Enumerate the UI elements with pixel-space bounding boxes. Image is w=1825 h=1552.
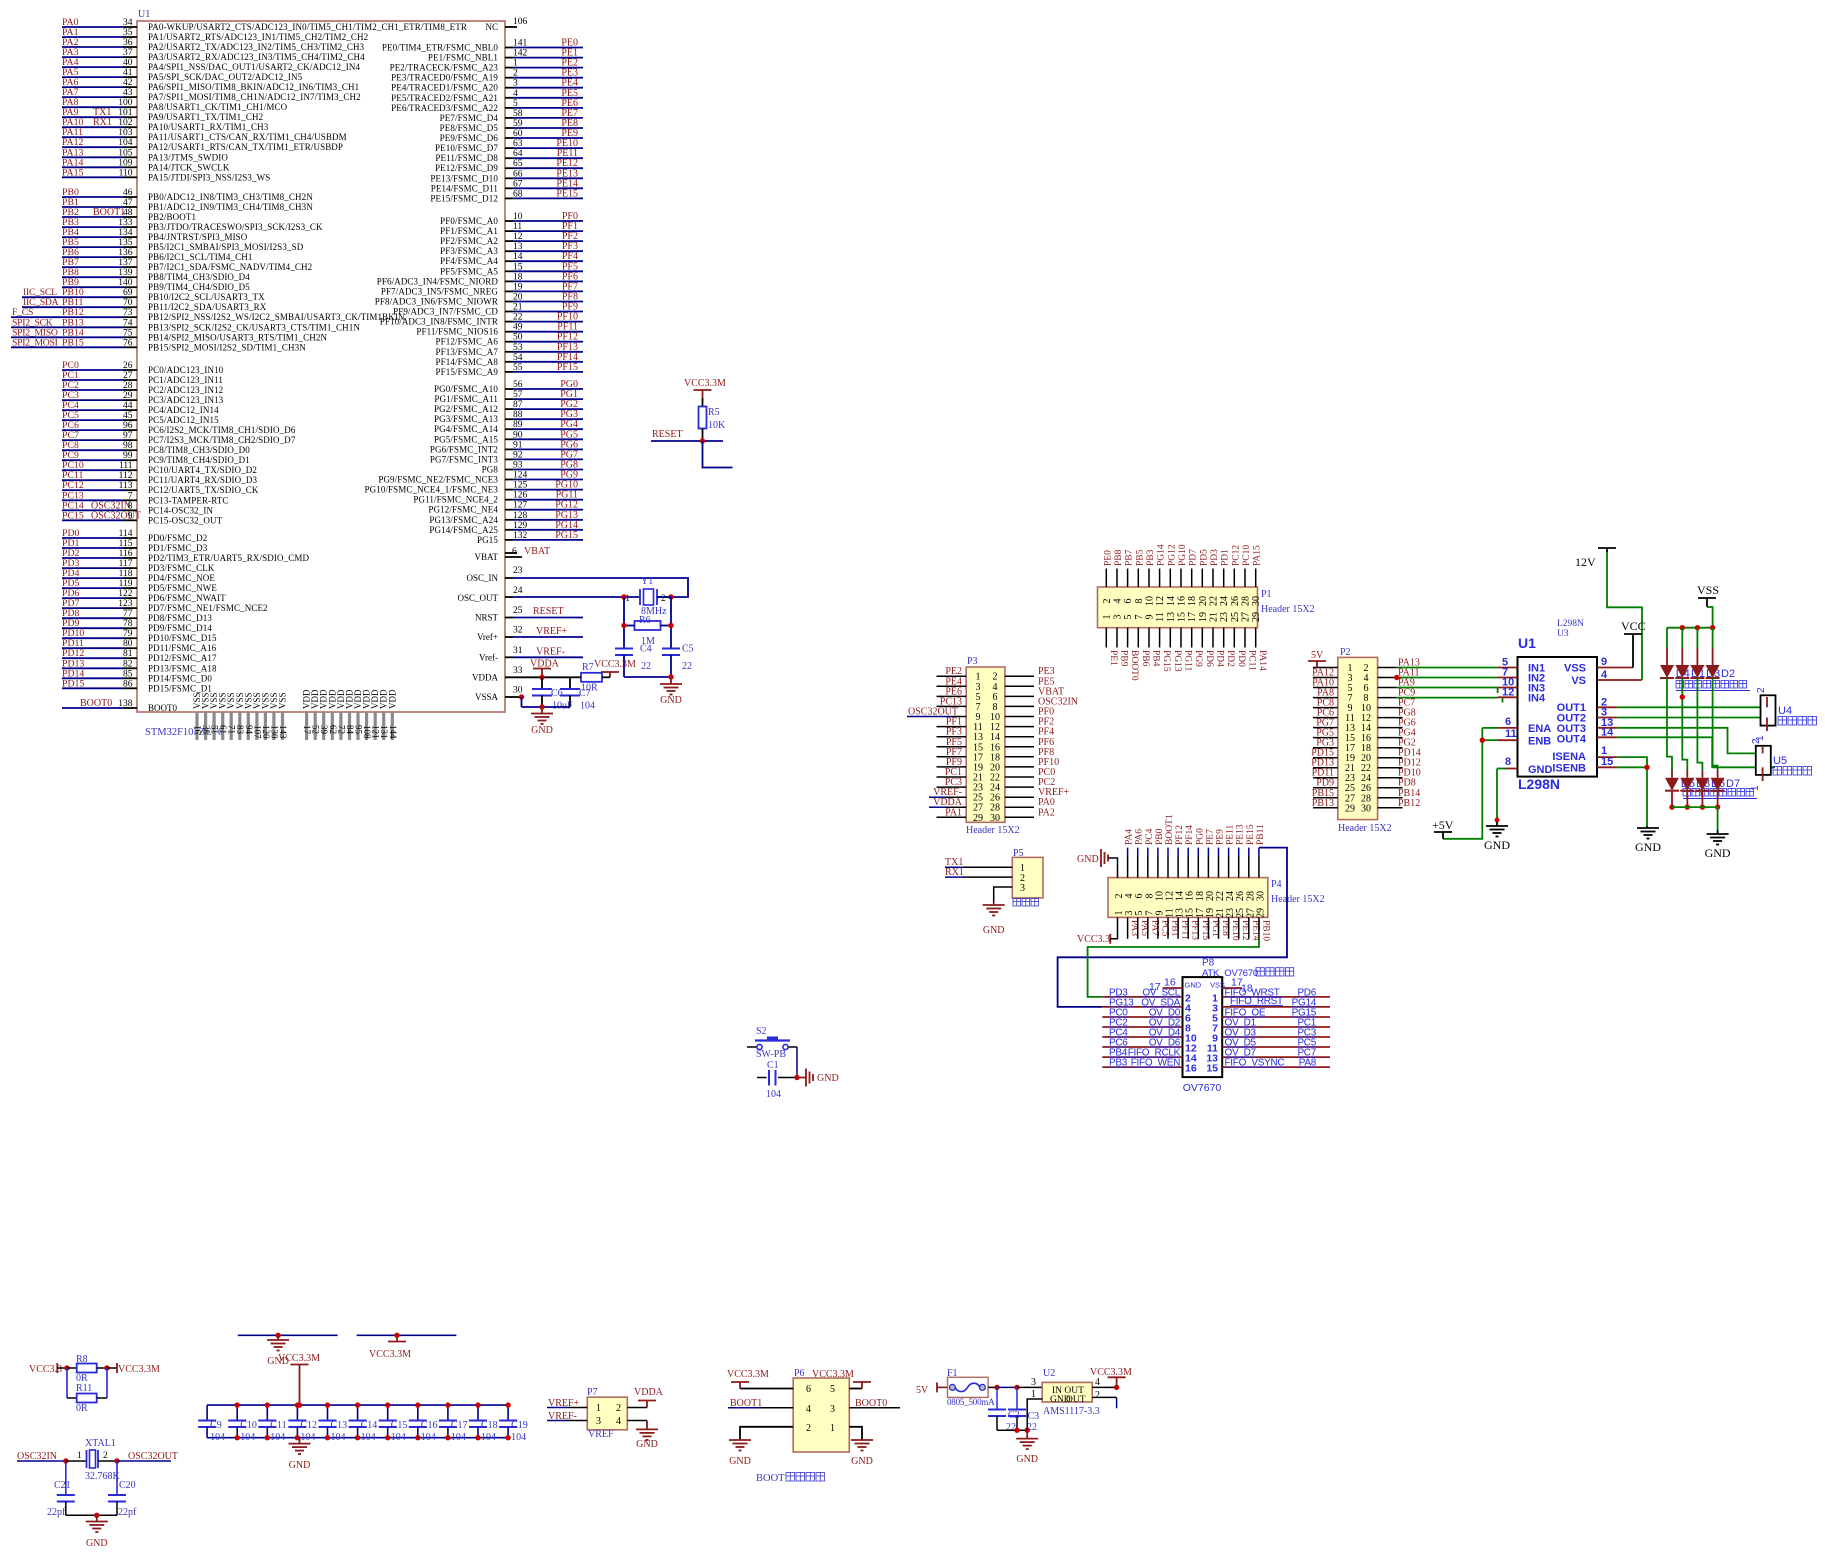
svg-text:8: 8 xyxy=(1134,599,1145,604)
svg-text:PA10/USART1_RX/TIM1_CH3: PA10/USART1_RX/TIM1_CH3 xyxy=(148,122,269,132)
svg-text:8: 8 xyxy=(1505,756,1511,768)
svg-text:11: 11 xyxy=(513,222,522,232)
svg-text:OUT: OUT xyxy=(1066,1395,1086,1405)
svg-text:138: 138 xyxy=(118,699,133,709)
svg-text:OV7670: OV7670 xyxy=(1183,1082,1222,1094)
svg-text:1: 1 xyxy=(625,594,630,604)
svg-text:116: 116 xyxy=(119,549,133,559)
svg-text:9: 9 xyxy=(1601,656,1607,668)
svg-text:PA4/SPI1_NSS/DAC_OUT1/USART2_C: PA4/SPI1_NSS/DAC_OUT1/USART2_CK/ADC12_IN… xyxy=(148,62,360,72)
svg-text:53: 53 xyxy=(513,343,523,353)
svg-text:PA14/JTCK_SWCLK: PA14/JTCK_SWCLK xyxy=(148,162,230,172)
svg-text:100: 100 xyxy=(118,98,133,108)
svg-text:122: 122 xyxy=(118,589,133,599)
svg-text:52: 52 xyxy=(311,725,321,734)
svg-text:74: 74 xyxy=(123,318,133,328)
svg-text:139: 139 xyxy=(118,268,133,278)
svg-text:104: 104 xyxy=(451,1432,466,1443)
svg-text:10uF: 10uF xyxy=(552,701,573,712)
svg-text:ENA: ENA xyxy=(1528,723,1551,735)
svg-text:135: 135 xyxy=(118,238,133,248)
svg-text:PB0/ADC12_IN8/TIM3_CH3/TIM8_CH: PB0/ADC12_IN8/TIM3_CH3/TIM8_CH2N xyxy=(148,192,313,202)
svg-text:PB12/SPI2_NSS/I2S2_WS/I2C2_SMB: PB12/SPI2_NSS/I2S2_WS/I2C2_SMBAI/USART3_… xyxy=(148,312,405,322)
svg-text:104: 104 xyxy=(361,1432,376,1443)
svg-text:30: 30 xyxy=(990,813,1000,824)
svg-text:22: 22 xyxy=(513,313,523,323)
svg-text:PB6/I2C1_SCL/TIM4_CH1: PB6/I2C1_SCL/TIM4_CH1 xyxy=(148,252,253,262)
svg-text:67: 67 xyxy=(513,179,523,189)
svg-text:PC15: PC15 xyxy=(62,510,84,521)
svg-text:R5: R5 xyxy=(708,407,720,418)
svg-text:104: 104 xyxy=(240,1432,255,1443)
svg-text:P1: P1 xyxy=(1261,589,1272,600)
svg-text:PD5/FSMC_NWE: PD5/FSMC_NWE xyxy=(148,583,217,593)
svg-text:28: 28 xyxy=(1241,596,1252,606)
svg-text:PG15: PG15 xyxy=(477,535,498,545)
svg-text:PC1/ADC123_IN11: PC1/ADC123_IN11 xyxy=(148,375,223,385)
svg-text:117: 117 xyxy=(119,559,133,569)
svg-text:C5: C5 xyxy=(682,644,694,655)
svg-text:11: 11 xyxy=(1155,612,1166,622)
svg-text:C21: C21 xyxy=(54,1480,71,1491)
svg-text:15: 15 xyxy=(1177,612,1188,622)
svg-text:1: 1 xyxy=(830,1423,835,1434)
svg-text:PB7: PB7 xyxy=(1125,549,1135,566)
svg-text:59: 59 xyxy=(513,119,523,129)
svg-text:115: 115 xyxy=(119,539,133,549)
svg-text:120: 120 xyxy=(261,725,271,739)
svg-text:14: 14 xyxy=(1601,726,1614,738)
svg-text:R7: R7 xyxy=(582,662,594,673)
svg-text:VDD: VDD xyxy=(387,689,397,709)
svg-text:50: 50 xyxy=(513,333,523,343)
svg-text:1: 1 xyxy=(1102,615,1113,620)
svg-text:GND: GND xyxy=(1635,840,1661,854)
svg-text:29: 29 xyxy=(973,813,983,824)
svg-text:130: 130 xyxy=(269,725,279,739)
svg-text:PF14: PF14 xyxy=(1185,825,1195,845)
svg-text:70: 70 xyxy=(123,298,133,308)
svg-text:16: 16 xyxy=(1185,1063,1197,1075)
svg-text:PE10/FSMC_D7: PE10/FSMC_D7 xyxy=(435,143,498,153)
svg-text:PG10/FSMC_NCE4_1/FSMC_NE3: PG10/FSMC_NCE4_1/FSMC_NE3 xyxy=(364,485,498,495)
svg-text:PG15: PG15 xyxy=(555,530,578,541)
svg-text:PG8: PG8 xyxy=(482,465,499,475)
svg-text:PF13/FSMC_A7: PF13/FSMC_A7 xyxy=(436,347,499,357)
svg-text:13: 13 xyxy=(1166,612,1177,622)
svg-text:PD5: PD5 xyxy=(1199,549,1209,566)
svg-text:U4: U4 xyxy=(1778,705,1792,717)
svg-text:PD3: PD3 xyxy=(1210,549,1220,566)
svg-text:PE11/FSMC_D8: PE11/FSMC_D8 xyxy=(435,153,498,163)
svg-text:P3: P3 xyxy=(967,656,978,667)
svg-text:PB9/TIM4_CH4/SDIO_D5: PB9/TIM4_CH4/SDIO_D5 xyxy=(148,282,250,292)
svg-text:NC: NC xyxy=(485,22,498,32)
svg-text:PC12: PC12 xyxy=(1231,545,1241,566)
svg-text:92: 92 xyxy=(513,450,523,460)
svg-text:PE15: PE15 xyxy=(556,188,578,199)
svg-text:10: 10 xyxy=(513,212,523,222)
svg-text:PD15/FSMC_D1: PD15/FSMC_D1 xyxy=(148,683,212,693)
svg-text:28: 28 xyxy=(123,381,133,391)
svg-text:6: 6 xyxy=(806,1384,811,1395)
svg-text:PD15: PD15 xyxy=(62,678,84,689)
svg-text:PF10/ADC3_IN8/FSMC_INTR: PF10/ADC3_IN8/FSMC_INTR xyxy=(380,317,498,327)
svg-text:PF4/FSMC_A4: PF4/FSMC_A4 xyxy=(440,256,498,266)
svg-text:113: 113 xyxy=(119,481,133,491)
svg-text:62: 62 xyxy=(328,725,338,734)
svg-text:PE14/FSMC_D11: PE14/FSMC_D11 xyxy=(431,183,498,193)
svg-text:49: 49 xyxy=(513,323,523,333)
svg-text:PA1/USART2_RTS/ADC123_IN1/TIM5: PA1/USART2_RTS/ADC123_IN1/TIM5_CH2/TIM2_… xyxy=(148,32,368,42)
svg-text:FIFO_VSYNC: FIFO_VSYNC xyxy=(1225,1058,1285,1069)
svg-text:54: 54 xyxy=(513,353,523,363)
svg-text:6: 6 xyxy=(512,547,517,557)
svg-text:25: 25 xyxy=(513,606,523,616)
svg-text:2: 2 xyxy=(661,594,666,604)
svg-text:GND: GND xyxy=(817,1073,839,1084)
svg-text:PD6: PD6 xyxy=(1204,650,1214,667)
svg-text:GND: GND xyxy=(1185,981,1202,990)
svg-text:XTAL1: XTAL1 xyxy=(85,1438,116,1449)
svg-text:PB5/I2C1_SMBAI/SPI3_MOSI/I2S3_: PB5/I2C1_SMBAI/SPI3_MOSI/I2S3_SD xyxy=(148,242,304,252)
svg-text:PF15/FSMC_A9: PF15/FSMC_A9 xyxy=(436,367,499,377)
svg-text:105: 105 xyxy=(118,148,133,158)
svg-text:PG2/FSMC_A12: PG2/FSMC_A12 xyxy=(434,404,498,414)
svg-text:22: 22 xyxy=(1006,1422,1016,1433)
svg-text:Header 15X2: Header 15X2 xyxy=(1261,604,1315,615)
svg-text:PD13/FSMC_A18: PD13/FSMC_A18 xyxy=(148,663,217,673)
svg-text:BOOT0: BOOT0 xyxy=(148,703,177,713)
svg-text:104: 104 xyxy=(210,1432,225,1443)
svg-text:PF7/ADC3_IN5/FSMC_NREG: PF7/ADC3_IN5/FSMC_NREG xyxy=(381,286,499,296)
svg-text:GND: GND xyxy=(1528,764,1553,776)
svg-text:FIFO_WEN: FIFO_WEN xyxy=(1131,1058,1180,1069)
svg-text:C11: C11 xyxy=(270,1420,286,1431)
svg-text:GND: GND xyxy=(729,1456,751,1467)
svg-text:PA4: PA4 xyxy=(1125,829,1135,845)
svg-text:51: 51 xyxy=(210,725,220,734)
svg-text:126: 126 xyxy=(513,491,528,501)
svg-text:95: 95 xyxy=(354,725,364,735)
svg-text:PG0/FSMC_A10: PG0/FSMC_A10 xyxy=(434,384,498,394)
svg-text:AMS1117-3.3: AMS1117-3.3 xyxy=(1043,1406,1100,1417)
svg-text:30: 30 xyxy=(1361,803,1371,814)
svg-text:PC2/ADC123_IN12: PC2/ADC123_IN12 xyxy=(148,385,223,395)
svg-text:PE1: PE1 xyxy=(1108,650,1118,666)
svg-text:104: 104 xyxy=(421,1432,436,1443)
svg-text:106: 106 xyxy=(513,17,528,27)
svg-text:63: 63 xyxy=(513,139,523,149)
svg-text:35: 35 xyxy=(123,28,133,38)
svg-text:22pf: 22pf xyxy=(118,1507,137,1518)
svg-text:68: 68 xyxy=(513,189,523,199)
svg-text:PA14: PA14 xyxy=(1257,650,1267,671)
svg-text:26: 26 xyxy=(123,361,133,371)
svg-text:U2: U2 xyxy=(1043,1368,1055,1379)
svg-text:PF15: PF15 xyxy=(557,362,578,373)
svg-text:PF5/FSMC_A5: PF5/FSMC_A5 xyxy=(440,266,498,276)
svg-text:PC4: PC4 xyxy=(1145,828,1155,845)
svg-text:75: 75 xyxy=(123,328,133,338)
svg-text:OUT4: OUT4 xyxy=(1557,734,1587,746)
svg-text:136: 136 xyxy=(118,248,133,258)
svg-text:31: 31 xyxy=(513,646,523,656)
svg-text:PB9: PB9 xyxy=(1119,650,1129,667)
svg-text:0R: 0R xyxy=(76,1403,88,1414)
svg-text:PA9/USART1_TX/TIM1_CH2: PA9/USART1_TX/TIM1_CH2 xyxy=(148,112,263,122)
svg-text:VS: VS xyxy=(1571,675,1586,687)
svg-text:PE15: PE15 xyxy=(1246,824,1256,845)
svg-text:PD2: PD2 xyxy=(1225,650,1235,667)
svg-text:OSC_IN: OSC_IN xyxy=(466,573,498,583)
svg-text:PD1/FSMC_D3: PD1/FSMC_D3 xyxy=(148,543,208,553)
svg-text:PC11/UART4_RX/SDIO_D3: PC11/UART4_RX/SDIO_D3 xyxy=(148,475,258,485)
svg-text:Vref+: Vref+ xyxy=(477,632,498,642)
svg-text:PD12/FSMC_A17: PD12/FSMC_A17 xyxy=(148,653,217,663)
svg-text:VSS: VSS xyxy=(1564,663,1586,675)
svg-text:PE8/FSMC_D5: PE8/FSMC_D5 xyxy=(440,123,499,133)
svg-text:6: 6 xyxy=(1505,716,1511,728)
svg-text:PB12: PB12 xyxy=(1398,798,1420,809)
svg-text:72: 72 xyxy=(336,725,346,734)
svg-text:38: 38 xyxy=(201,725,211,735)
svg-text:23: 23 xyxy=(513,566,523,576)
svg-text:PB1/ADC12_IN9/TIM3_CH4/TIM8_CH: PB1/ADC12_IN9/TIM3_CH4/TIM8_CH3N xyxy=(148,202,313,212)
svg-text:2: 2 xyxy=(1095,1390,1100,1401)
svg-text:4: 4 xyxy=(1113,599,1124,604)
svg-text:PG3/FSMC_A13: PG3/FSMC_A13 xyxy=(434,414,498,424)
svg-text:PF1/FSMC_A1: PF1/FSMC_A1 xyxy=(440,226,498,236)
svg-text:PB3: PB3 xyxy=(1146,549,1156,566)
svg-text:109: 109 xyxy=(118,158,133,168)
svg-text:BOOT1: BOOT1 xyxy=(1165,814,1175,845)
svg-text:VBAT: VBAT xyxy=(474,552,498,562)
svg-text:2: 2 xyxy=(1102,599,1113,604)
svg-text:VCC3.3M: VCC3.3M xyxy=(684,378,726,389)
svg-text:PC0/ADC123_IN10: PC0/ADC123_IN10 xyxy=(148,365,224,375)
svg-text:PG10: PG10 xyxy=(1178,544,1188,566)
svg-text:PF12/FSMC_A6: PF12/FSMC_A6 xyxy=(436,337,499,347)
svg-text:PB3/JTDO/TRACESWO/SPI3_SCK/I2S: PB3/JTDO/TRACESWO/SPI3_SCK/I2S3_CK xyxy=(148,222,323,232)
svg-text:114: 114 xyxy=(119,529,133,539)
svg-text:PE0: PE0 xyxy=(1103,550,1113,566)
svg-text:P7: P7 xyxy=(587,1387,598,1398)
svg-text:PB15/SPI2_MOSI/I2S2_SD/TIM1_CH: PB15/SPI2_MOSI/I2S2_SD/TIM1_CH3N xyxy=(148,342,306,352)
svg-text:2: 2 xyxy=(806,1423,811,1434)
svg-text:PE15/FSMC_D12: PE15/FSMC_D12 xyxy=(430,193,498,203)
svg-text:108: 108 xyxy=(362,725,372,739)
svg-text:NRST: NRST xyxy=(475,613,499,623)
svg-text:PC8/TIM8_CH3/SDIO_D0: PC8/TIM8_CH3/SDIO_D0 xyxy=(148,445,250,455)
svg-text:VCC3.3M: VCC3.3M xyxy=(278,1353,320,1364)
svg-text:97: 97 xyxy=(123,431,133,441)
svg-text:PF11/FSMC_NIOS16: PF11/FSMC_NIOS16 xyxy=(416,327,498,337)
svg-text:PG9/FSMC_NE2/FSMC_NCE3: PG9/FSMC_NE2/FSMC_NCE3 xyxy=(378,475,498,485)
svg-text:PB4: PB4 xyxy=(1151,650,1161,667)
svg-text:1: 1 xyxy=(1750,785,1761,791)
svg-text:U5: U5 xyxy=(1773,755,1787,767)
svg-text:22: 22 xyxy=(1209,596,1220,606)
svg-text:PE11: PE11 xyxy=(1226,825,1236,845)
svg-text:15: 15 xyxy=(513,262,523,272)
svg-text:PB5: PB5 xyxy=(1135,549,1145,566)
svg-text:PD7: PD7 xyxy=(1189,549,1199,566)
svg-text:87: 87 xyxy=(513,400,523,410)
svg-text:U1: U1 xyxy=(1518,635,1536,651)
svg-text:104: 104 xyxy=(300,1432,315,1443)
svg-text:PF8/ADC3_IN6/FSMC_NIOWR: PF8/ADC3_IN6/FSMC_NIOWR xyxy=(375,297,498,307)
svg-text:PA6: PA6 xyxy=(1135,829,1145,845)
svg-text:BOOT0: BOOT0 xyxy=(80,698,112,709)
svg-text:PB15: PB15 xyxy=(62,337,84,348)
svg-text:PD4: PD4 xyxy=(1215,650,1225,667)
svg-text:PE5/TRACED2/FSMC_A21: PE5/TRACED2/FSMC_A21 xyxy=(391,93,498,103)
svg-text:GND: GND xyxy=(289,1460,311,1471)
svg-text:20: 20 xyxy=(513,293,523,303)
svg-text:99: 99 xyxy=(123,451,133,461)
svg-text:13: 13 xyxy=(513,242,523,252)
svg-text:PA3/USART2_RX/ADC123_IN3/TIM5_: PA3/USART2_RX/ADC123_IN3/TIM5_CH4/TIM2_C… xyxy=(148,52,365,62)
svg-text:6: 6 xyxy=(1123,599,1134,604)
svg-text:GND: GND xyxy=(851,1456,873,1467)
svg-text:PA0-WKUP/USART2_CTS/ADC123_IN0: PA0-WKUP/USART2_CTS/ADC123_IN0/TIM5_CH1/… xyxy=(148,22,467,32)
svg-text:2: 2 xyxy=(1756,687,1767,693)
svg-text:PB10/I2C2_SCL/USART3_TX: PB10/I2C2_SCL/USART3_TX xyxy=(148,292,265,302)
svg-text:C18: C18 xyxy=(481,1420,498,1431)
svg-text:96: 96 xyxy=(123,421,133,431)
svg-text:18: 18 xyxy=(1187,596,1198,606)
svg-text:76: 76 xyxy=(123,338,133,348)
svg-text:C14: C14 xyxy=(361,1420,378,1431)
svg-text:PC10: PC10 xyxy=(1242,545,1252,566)
svg-text:PF12: PF12 xyxy=(1175,825,1185,845)
svg-text:PE3/TRACED0/FSMC_A19: PE3/TRACED0/FSMC_A19 xyxy=(391,73,498,83)
svg-text:PA13/JTMS_SWDIO: PA13/JTMS_SWDIO xyxy=(148,152,228,162)
svg-text:OSC32OUT: OSC32OUT xyxy=(91,510,141,521)
svg-text:32.768K: 32.768K xyxy=(85,1471,121,1482)
svg-text:R6: R6 xyxy=(639,615,651,626)
svg-text:C3: C3 xyxy=(1028,1411,1040,1422)
svg-text:PB3: PB3 xyxy=(1109,1058,1128,1069)
svg-text:PA6/SPI1_MISO/TIM8_BKIN/ADC12_: PA6/SPI1_MISO/TIM8_BKIN/ADC12_IN6/TIM3_C… xyxy=(148,82,359,92)
svg-text:VCC3.3M: VCC3.3M xyxy=(594,659,636,670)
svg-text:PC5/ADC12_IN15: PC5/ADC12_IN15 xyxy=(148,415,219,425)
svg-text:PF2/FSMC_A2: PF2/FSMC_A2 xyxy=(440,236,498,246)
svg-text:33: 33 xyxy=(513,666,523,676)
svg-text:94: 94 xyxy=(244,725,254,735)
svg-text:93: 93 xyxy=(513,461,523,471)
svg-text:PA2: PA2 xyxy=(1038,807,1055,818)
svg-text:PG7/FSMC_INT3: PG7/FSMC_INT3 xyxy=(430,454,498,464)
svg-text:GND: GND xyxy=(983,925,1005,936)
svg-text:PG5/FSMC_A15: PG5/FSMC_A15 xyxy=(434,434,498,444)
svg-text:PA5/SPI_SCK/DAC_OUT2/ADC12_IN5: PA5/SPI_SCK/DAC_OUT2/ADC12_IN5 xyxy=(148,72,303,82)
svg-text:60: 60 xyxy=(513,129,523,139)
svg-text:+5V: +5V xyxy=(1432,818,1454,832)
svg-text:VSS: VSS xyxy=(1210,981,1225,990)
svg-text:VREF-: VREF- xyxy=(536,647,565,658)
svg-text:PG13/FSMC_A24: PG13/FSMC_A24 xyxy=(429,515,498,525)
svg-text:PB0: PB0 xyxy=(1155,828,1165,845)
svg-text:Header 15X2: Header 15X2 xyxy=(1338,823,1392,834)
svg-text:26: 26 xyxy=(1230,596,1241,606)
svg-text:89: 89 xyxy=(513,420,523,430)
svg-text:22: 22 xyxy=(682,661,692,672)
svg-text:103: 103 xyxy=(118,128,133,138)
svg-text:PE13: PE13 xyxy=(1236,824,1246,845)
svg-text:124: 124 xyxy=(513,471,528,481)
svg-text:PE12/FSMC_D9: PE12/FSMC_D9 xyxy=(435,163,498,173)
svg-text:R11: R11 xyxy=(76,1383,92,1394)
svg-text:PA15: PA15 xyxy=(1253,545,1263,566)
svg-text:10: 10 xyxy=(1145,596,1156,606)
svg-text:VSS: VSS xyxy=(278,692,288,709)
svg-text:PA2/USART2_TX/ADC123_IN2/TIM5_: PA2/USART2_TX/ADC123_IN2/TIM5_CH3/TIM2_C… xyxy=(148,42,365,52)
svg-text:PG15: PG15 xyxy=(1161,650,1171,672)
svg-text:141: 141 xyxy=(513,39,528,49)
svg-text:PA15/JTDI/SPI3_NSS/I2S3_WS: PA15/JTDI/SPI3_NSS/I2S3_WS xyxy=(148,172,270,182)
svg-text:41: 41 xyxy=(123,68,133,78)
svg-text:16: 16 xyxy=(193,725,203,735)
svg-text:Header 15X2: Header 15X2 xyxy=(1271,894,1325,905)
svg-text:L298N: L298N xyxy=(1557,619,1584,629)
svg-text:104: 104 xyxy=(118,138,133,148)
svg-text:PF6/ADC3_IN4/FSMC_NIORD: PF6/ADC3_IN4/FSMC_NIORD xyxy=(377,276,499,286)
svg-text:BOOT0: BOOT0 xyxy=(1129,650,1139,681)
svg-text:VCC: VCC xyxy=(1621,619,1646,633)
svg-text:78: 78 xyxy=(123,619,133,629)
svg-text:OSC_OUT: OSC_OUT xyxy=(457,593,498,603)
svg-text:10K: 10K xyxy=(708,420,726,431)
svg-text:25: 25 xyxy=(1230,612,1241,622)
svg-text:VDDA: VDDA xyxy=(472,672,498,682)
svg-text:0805_500mA: 0805_500mA xyxy=(947,1397,995,1407)
svg-text:SW-PB: SW-PB xyxy=(756,1049,786,1060)
svg-text:82: 82 xyxy=(123,659,133,669)
svg-text:VBAT: VBAT xyxy=(524,546,550,557)
svg-text:PB2/BOOT1: PB2/BOOT1 xyxy=(148,212,196,222)
svg-text:PD1: PD1 xyxy=(1221,549,1231,566)
svg-text:12: 12 xyxy=(1155,596,1166,606)
svg-text:C10: C10 xyxy=(240,1420,257,1431)
svg-text:5: 5 xyxy=(1123,615,1134,620)
svg-text:5V: 5V xyxy=(916,1385,929,1396)
svg-text:128: 128 xyxy=(513,511,528,521)
svg-text:80: 80 xyxy=(123,639,133,649)
svg-text:42: 42 xyxy=(123,78,133,88)
svg-text:44: 44 xyxy=(123,401,133,411)
svg-text:PD9/FSMC_D14: PD9/FSMC_D14 xyxy=(148,623,212,633)
svg-text:104: 104 xyxy=(331,1432,346,1443)
svg-text:121: 121 xyxy=(371,725,381,739)
svg-text:PA8/USART1_CK/TIM1_CH1/MCO: PA8/USART1_CK/TIM1_CH1/MCO xyxy=(148,102,288,112)
svg-text:2: 2 xyxy=(513,69,518,79)
svg-text:PB4/JNTRST/SPI3_MISO: PB4/JNTRST/SPI3_MISO xyxy=(148,232,248,242)
svg-text:83: 83 xyxy=(235,725,245,735)
svg-text:PB13/SPI2_SCK/I2S2_CK/USART3_C: PB13/SPI2_SCK/I2S2_CK/USART3_CTS/TIM1_CH… xyxy=(148,322,360,332)
svg-text:C17: C17 xyxy=(451,1420,468,1431)
svg-text:PC15-OSC32_OUT: PC15-OSC32_OUT xyxy=(148,515,223,525)
svg-text:GND: GND xyxy=(1484,838,1510,852)
svg-text:3: 3 xyxy=(830,1404,835,1415)
svg-text:FIFO_RRST: FIFO_RRST xyxy=(1230,996,1283,1007)
svg-text:VCC3.3M: VCC3.3M xyxy=(369,1349,411,1360)
svg-text:15: 15 xyxy=(1601,756,1613,768)
svg-text:131: 131 xyxy=(379,725,389,739)
svg-text:PD11/FSMC_A16: PD11/FSMC_A16 xyxy=(148,643,217,653)
svg-text:GND: GND xyxy=(1016,1454,1038,1465)
